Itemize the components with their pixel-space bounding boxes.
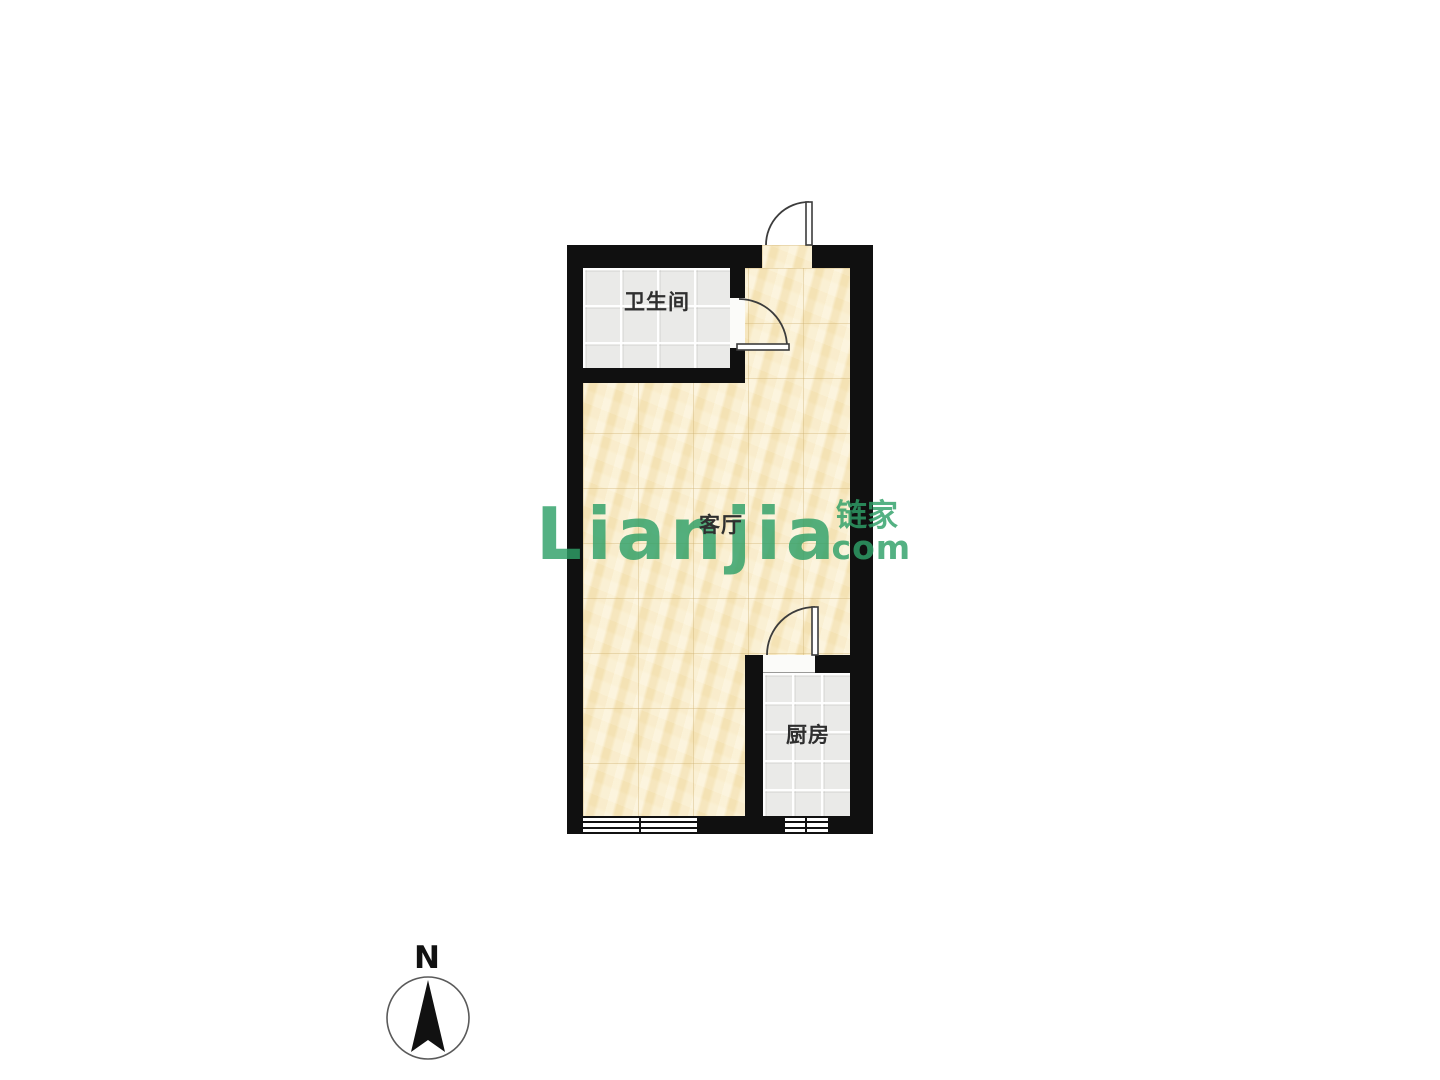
room-label-living-room: 客厅 [699, 509, 743, 539]
wall-bottom-right-corner [828, 816, 873, 834]
compass-circle [387, 977, 469, 1059]
entry-door [766, 202, 812, 245]
compass-north-arrow [411, 980, 445, 1052]
room-label-kitchen: 厨房 [786, 719, 830, 749]
entry-door-leaf [806, 202, 812, 245]
bathroom-door-threshold [730, 298, 745, 348]
window-mullion [805, 816, 807, 834]
window-mullion [639, 816, 641, 834]
wall-left [567, 268, 583, 834]
room-label-bathroom: 卫生间 [624, 286, 690, 316]
wall-kitchen-left [745, 655, 763, 816]
wall-right [850, 268, 873, 834]
wall-bottom-mid-segment [697, 816, 785, 834]
wall-bathroom-right-lower [730, 348, 745, 383]
kitchen-door-threshold [763, 655, 815, 673]
bathroom-floor [583, 268, 730, 368]
living-room-window [583, 816, 697, 834]
kitchen-window [785, 816, 828, 834]
wall-bathroom-bottom [567, 368, 745, 383]
entry-door-arc [766, 202, 809, 245]
compass-north-label: N [414, 940, 440, 976]
wall-bathroom-right-upper [730, 245, 745, 298]
wall-kitchen-top-right [815, 655, 850, 673]
floorplan-page: N Lianjia 链家 .com 卫生间 客厅 厨房 [0, 0, 1440, 1080]
wall-top-right-segment [812, 245, 873, 268]
entry-threshold [762, 245, 812, 268]
compass: N [387, 940, 469, 1059]
